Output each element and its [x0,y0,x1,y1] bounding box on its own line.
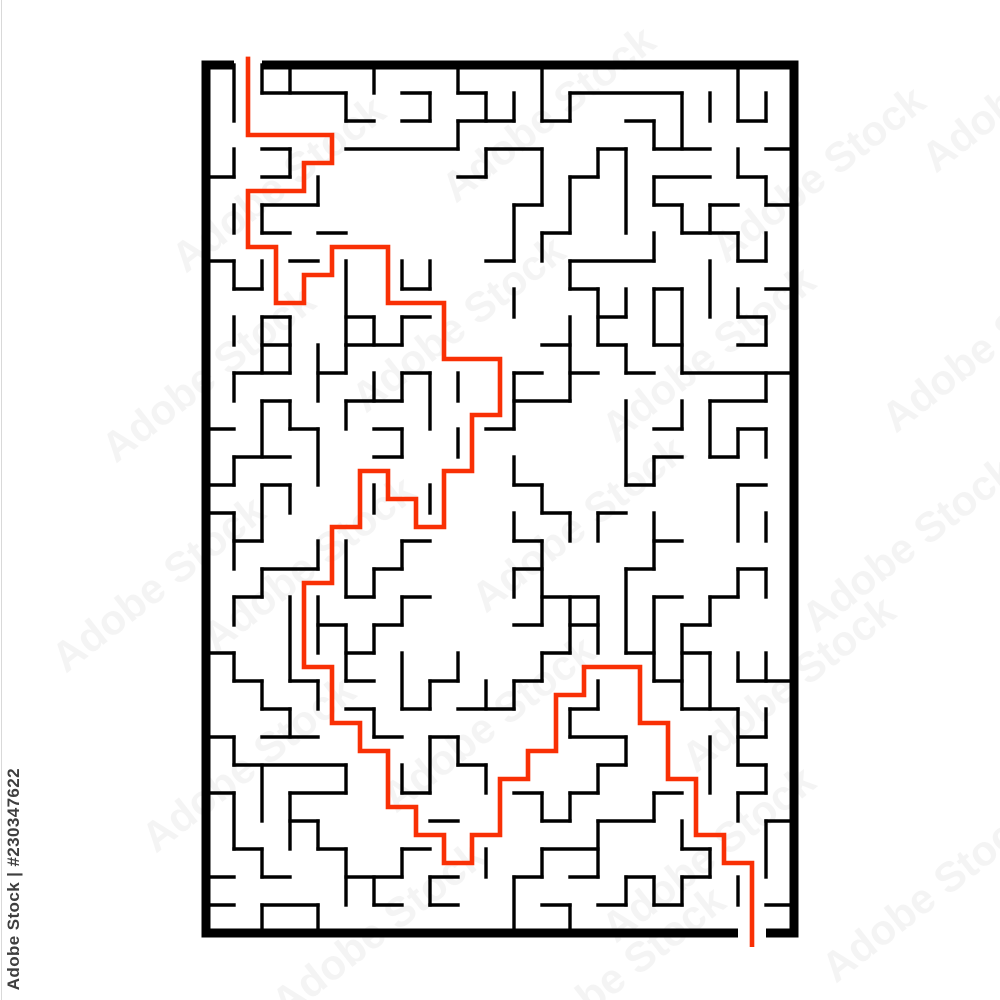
watermark-side-text: Adobe Stock | #230347622 [4,768,24,990]
maze-puzzle [0,0,1000,1000]
solution-path [248,57,752,947]
maze-stock-image: Adobe StockAdobe StockAdobe StockAdobe S… [0,0,1000,1000]
